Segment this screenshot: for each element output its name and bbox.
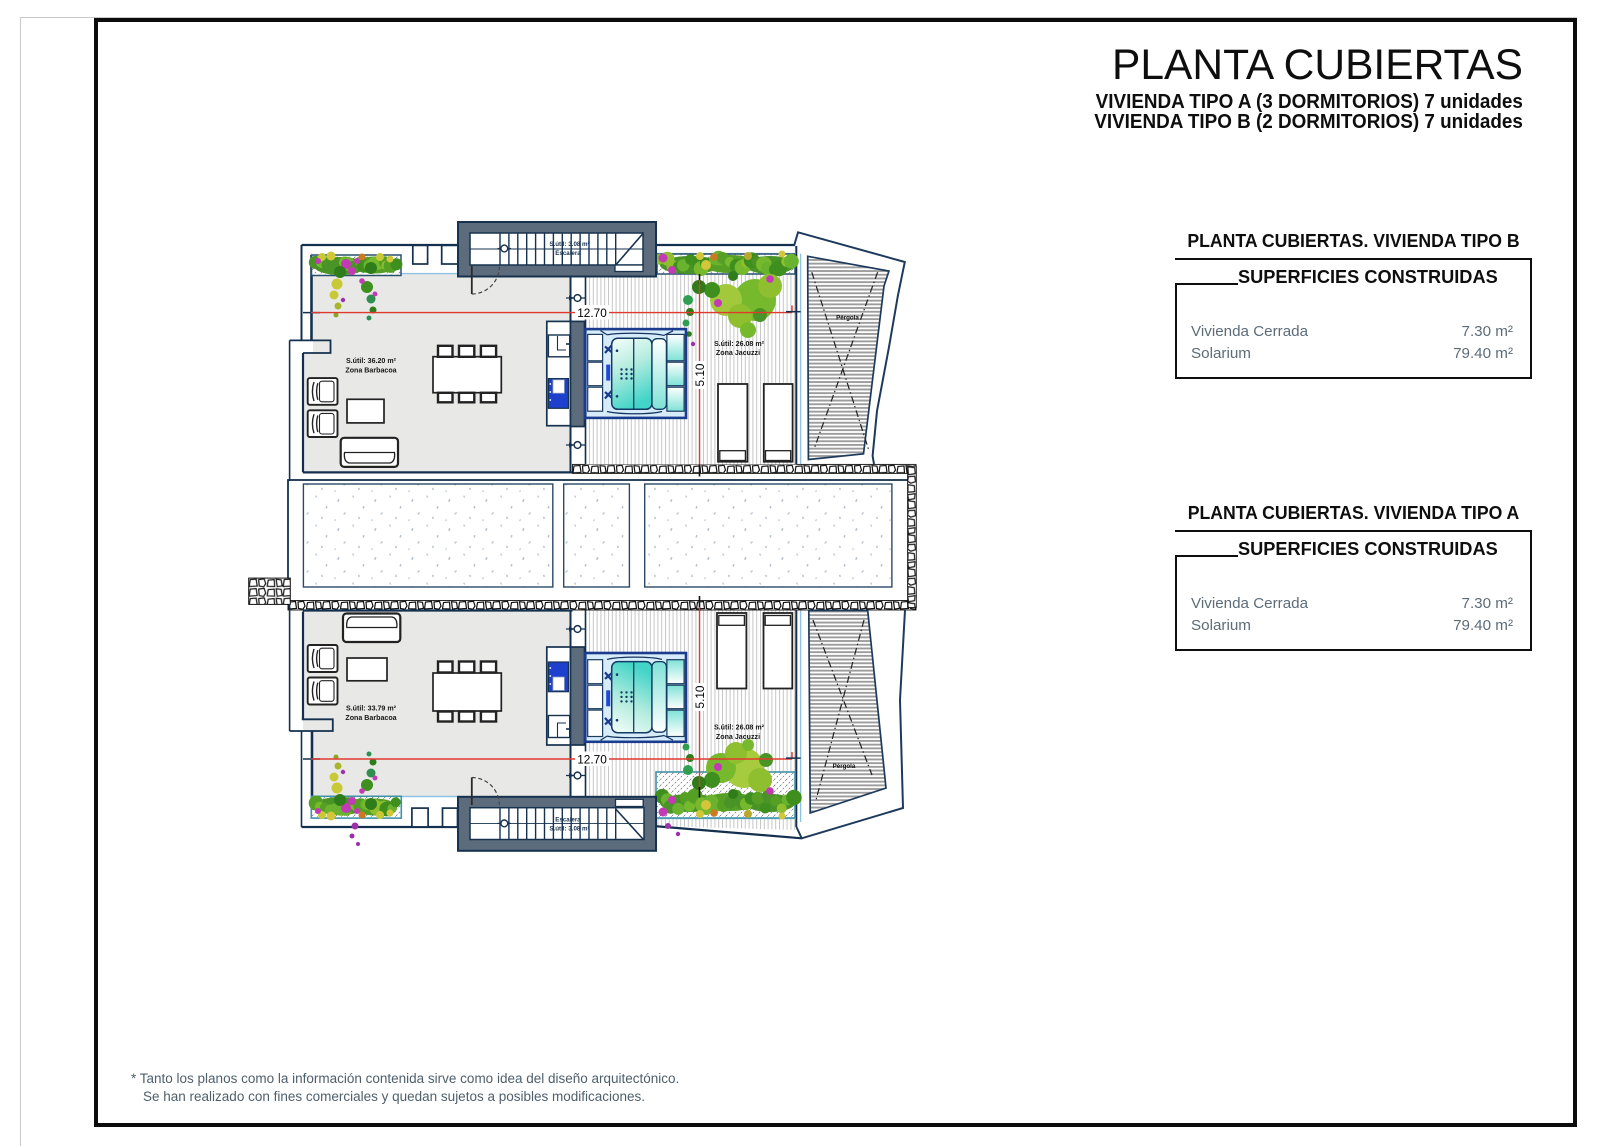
svg-text:Zona Barbacoa: Zona Barbacoa [345,714,396,722]
svg-text:S.útil: 3.08 m²: S.útil: 3.08 m² [549,241,589,248]
svg-text:Zona Jacuzzi: Zona Jacuzzi [716,733,760,741]
svg-text:5.10: 5.10 [693,363,707,386]
svg-text:Escalera: Escalera [555,817,581,824]
svg-text:12.70: 12.70 [577,753,607,767]
svg-text:12.70: 12.70 [577,306,607,320]
svg-text:Zona Barbacoa: Zona Barbacoa [345,367,396,375]
svg-text:S.útil: 36.20 m²: S.útil: 36.20 m² [346,357,397,365]
svg-text:S.útil: 3.08 m²: S.útil: 3.08 m² [549,826,589,833]
svg-text:S.útil: 26.08 m²: S.útil: 26.08 m² [714,724,765,732]
svg-text:S.útil: 33.79 m²: S.útil: 33.79 m² [346,705,397,713]
svg-text:Pérgola: Pérgola [833,763,856,770]
svg-text:Zona Jacuzzi: Zona Jacuzzi [716,349,760,357]
svg-text:Pérgola: Pérgola [836,315,859,322]
svg-text:Escalera: Escalera [555,250,581,257]
svg-text:S.útil: 26.08 m²: S.útil: 26.08 m² [714,340,765,348]
svg-text:5.10: 5.10 [693,685,707,708]
